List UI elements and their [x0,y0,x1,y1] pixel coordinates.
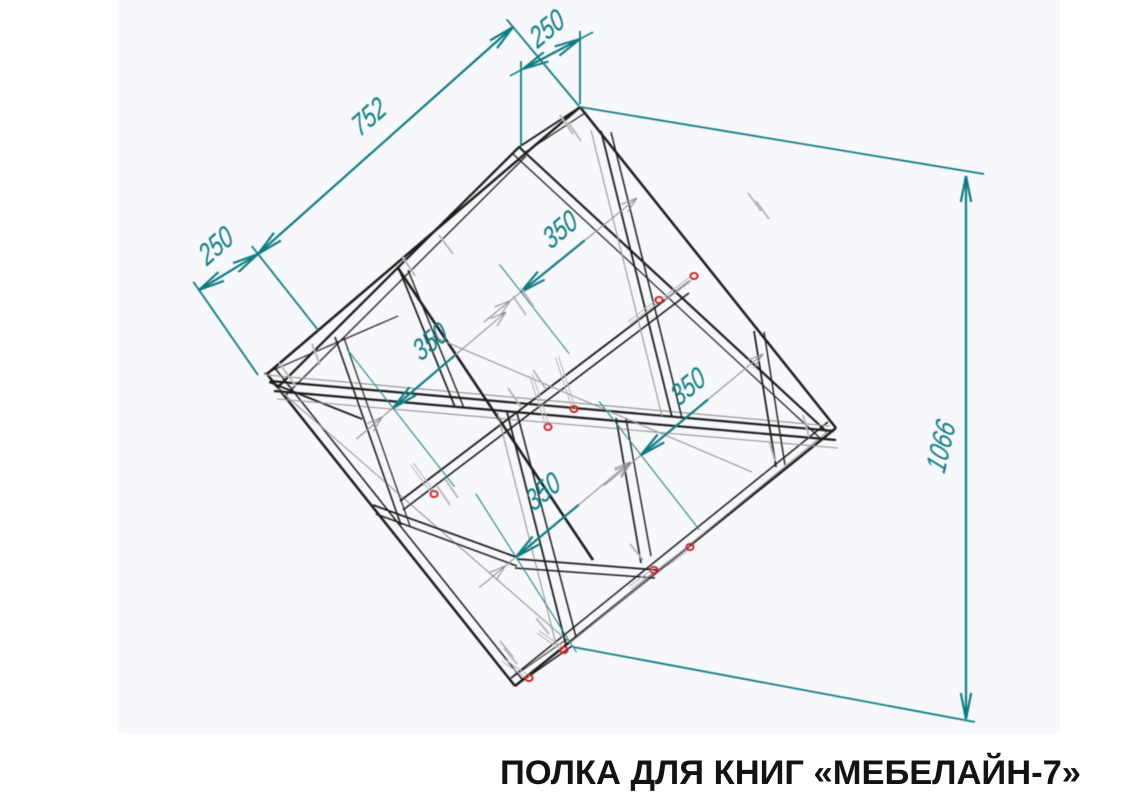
svg-text:1066: 1066 [920,415,962,478]
svg-text:350: 350 [407,314,453,368]
svg-text:350: 350 [665,359,711,413]
svg-text:250: 250 [192,218,239,272]
svg-text:752: 752 [346,89,392,143]
